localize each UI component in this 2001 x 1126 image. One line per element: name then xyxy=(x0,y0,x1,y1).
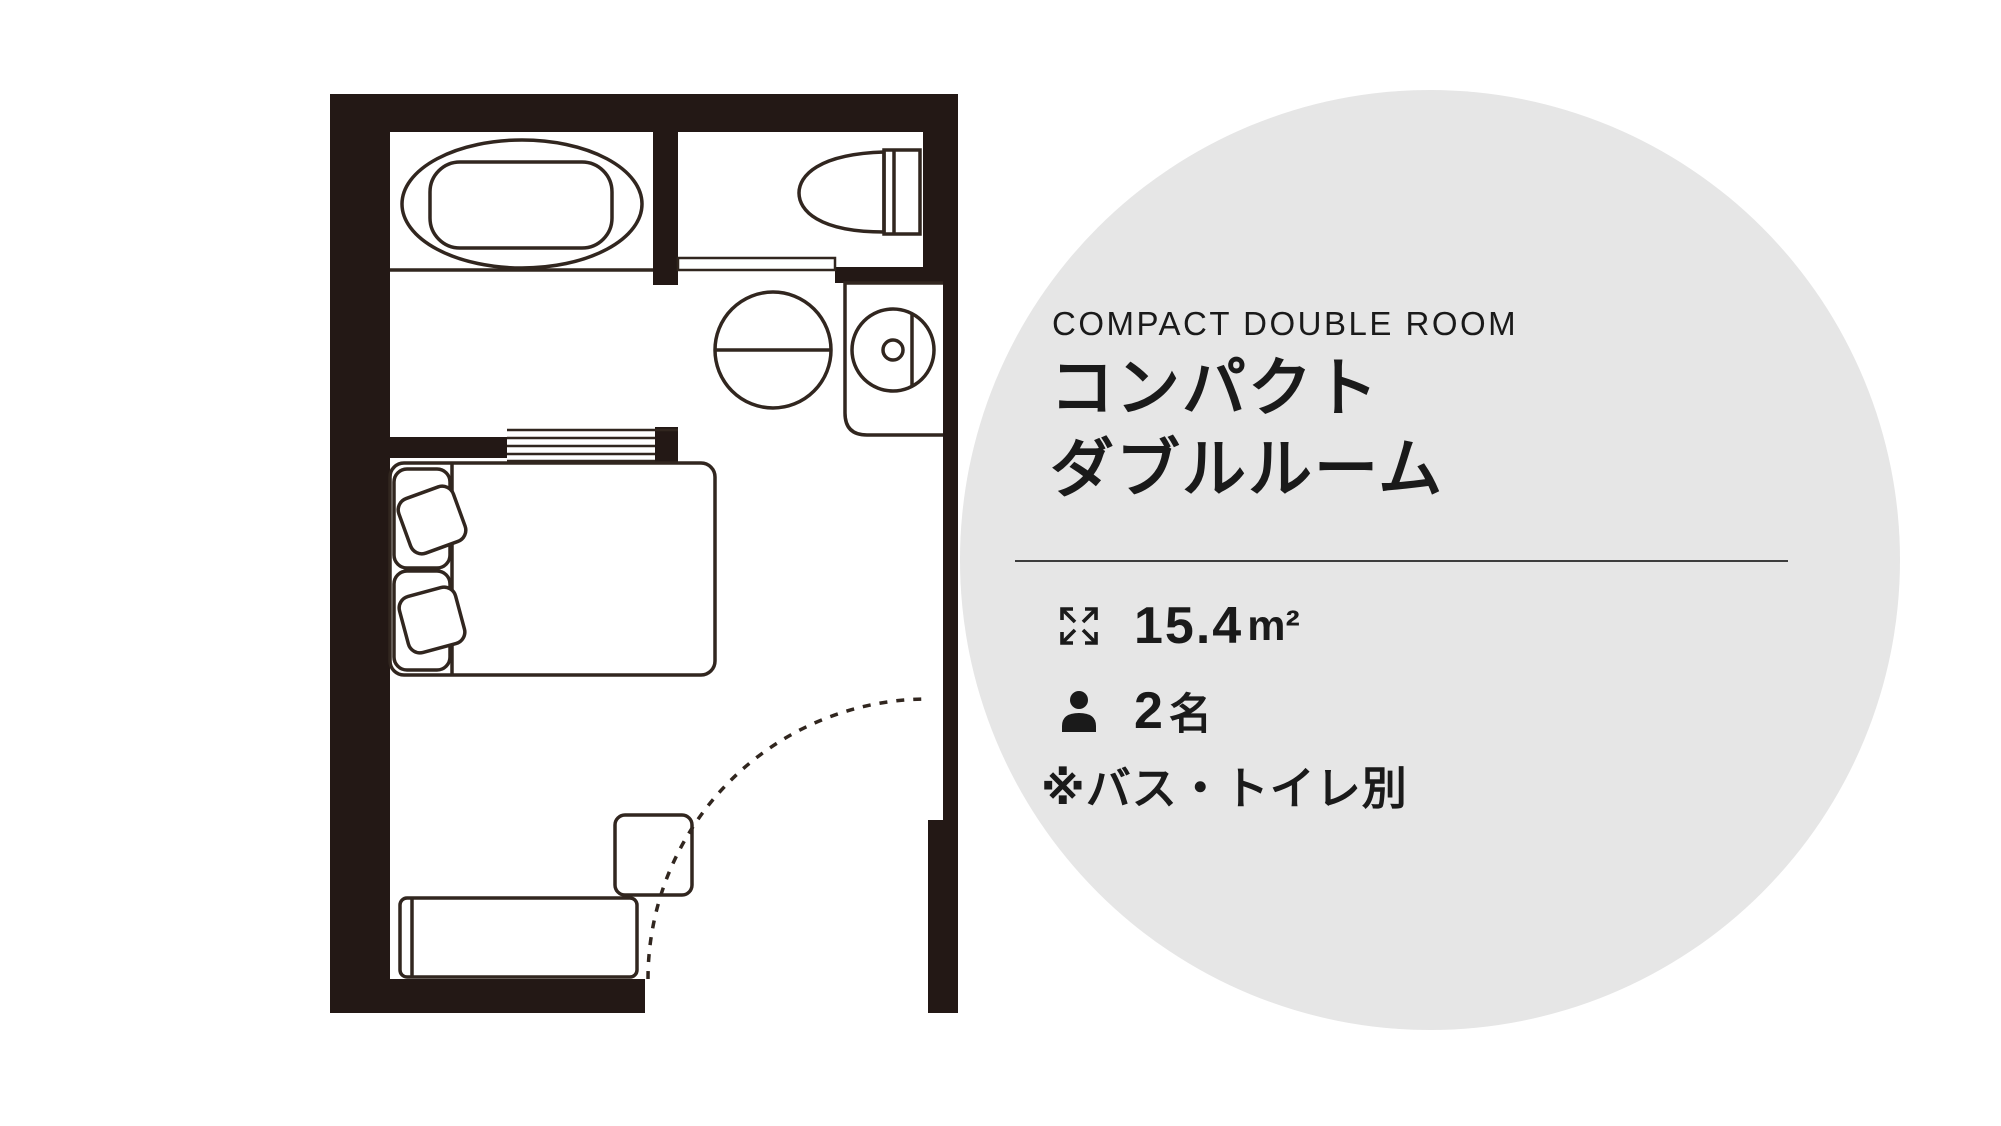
person-icon xyxy=(1058,688,1100,734)
capacity-value: 2 xyxy=(1134,681,1165,741)
divider-line xyxy=(1015,560,1788,562)
desk xyxy=(400,898,637,977)
sliding-door-track xyxy=(507,430,678,461)
floor-plan xyxy=(0,0,2001,1126)
wall-toilet-bottom xyxy=(835,267,943,283)
wall-top xyxy=(330,94,958,132)
expand-arrows-icon xyxy=(1058,605,1100,647)
toilet xyxy=(799,150,920,234)
chair xyxy=(615,815,692,895)
room-title-ja-line2: ダブルルーム xyxy=(1050,429,1444,510)
toilet-door xyxy=(678,258,835,270)
washbasin xyxy=(715,292,831,408)
wall-toilet-side xyxy=(923,94,958,283)
area-row: 15.4m² xyxy=(1058,596,1300,656)
room-info-card: COMPACT DOUBLE ROOM コンパクト ダブルルーム 15.4m² … xyxy=(0,0,2001,1126)
wall-bath-toilet-divider xyxy=(653,132,678,285)
room-title-ja-line1: コンパクト xyxy=(1050,348,1444,429)
double-bed xyxy=(390,463,715,675)
wall-left xyxy=(330,94,390,1013)
wall-door-jamb xyxy=(928,820,958,1013)
capacity-row: 2名 xyxy=(1058,680,1212,742)
wall-bottom xyxy=(330,979,645,1013)
toilet-tank xyxy=(884,150,920,234)
entrance-door-swing-arc xyxy=(648,699,928,979)
note-text: ※バス・トイレ別 xyxy=(1041,752,1408,817)
room-title-ja: コンパクト ダブルルーム xyxy=(1050,348,1444,510)
area-value: 15.4 xyxy=(1134,596,1243,656)
wall-bathroom-bottom xyxy=(390,437,507,458)
wall-sliding-door-stub xyxy=(655,427,678,463)
capacity-unit: 名 xyxy=(1169,680,1212,742)
note-row: ※バス・トイレ別 xyxy=(1041,752,1408,817)
bathtub xyxy=(390,140,653,270)
area-unit: m² xyxy=(1247,602,1300,651)
room-title-en: COMPACT DOUBLE ROOM xyxy=(1052,305,1518,343)
faucet xyxy=(852,309,934,391)
